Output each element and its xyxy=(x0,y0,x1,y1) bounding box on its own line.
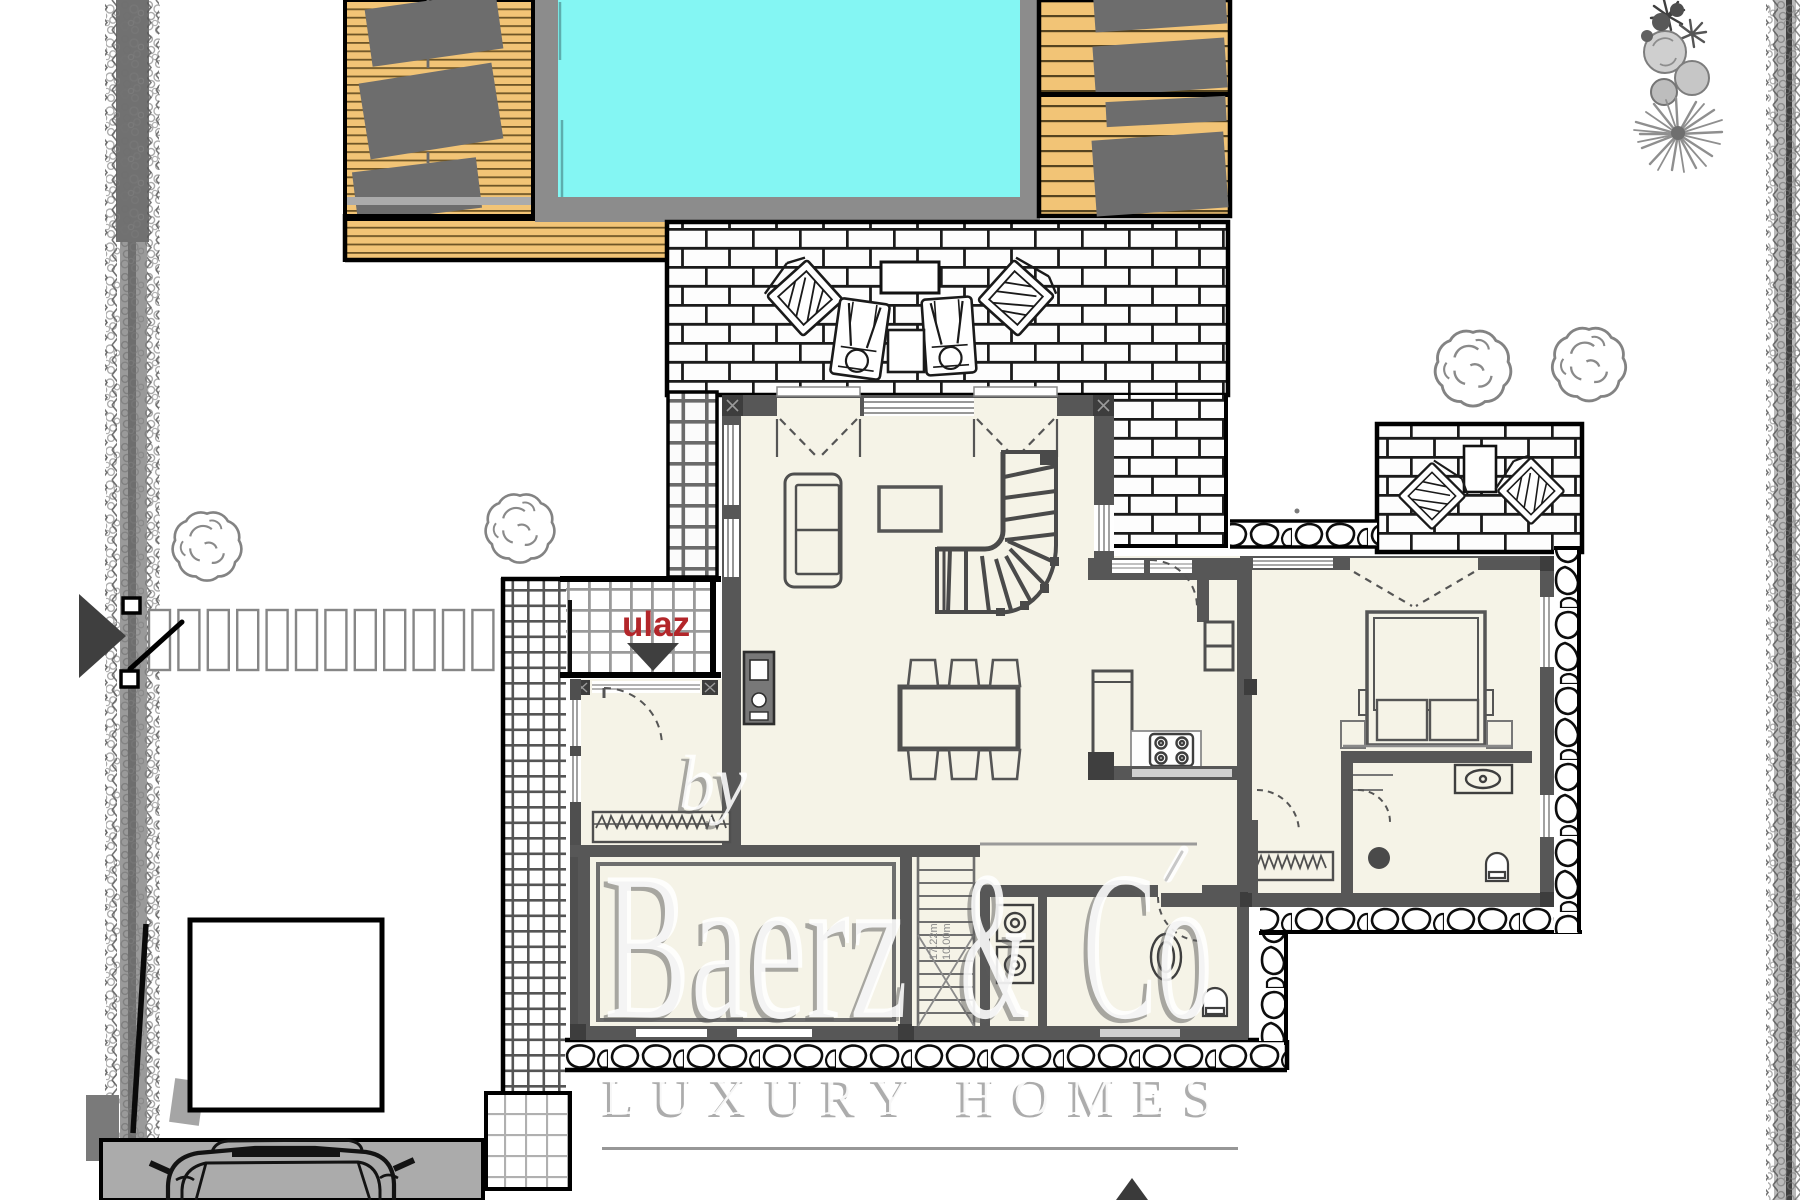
svg-text:&: & xyxy=(960,828,1030,1064)
svg-text:ulaz: ulaz xyxy=(622,605,690,644)
svg-text:17.22m: 17.22m xyxy=(928,923,940,960)
svg-text:10.00m: 10.00m xyxy=(941,923,953,960)
svg-text:Baerz: Baerz xyxy=(604,828,908,1064)
svg-text:Co: Co xyxy=(1083,828,1213,1064)
svg-text:by: by xyxy=(679,739,747,826)
